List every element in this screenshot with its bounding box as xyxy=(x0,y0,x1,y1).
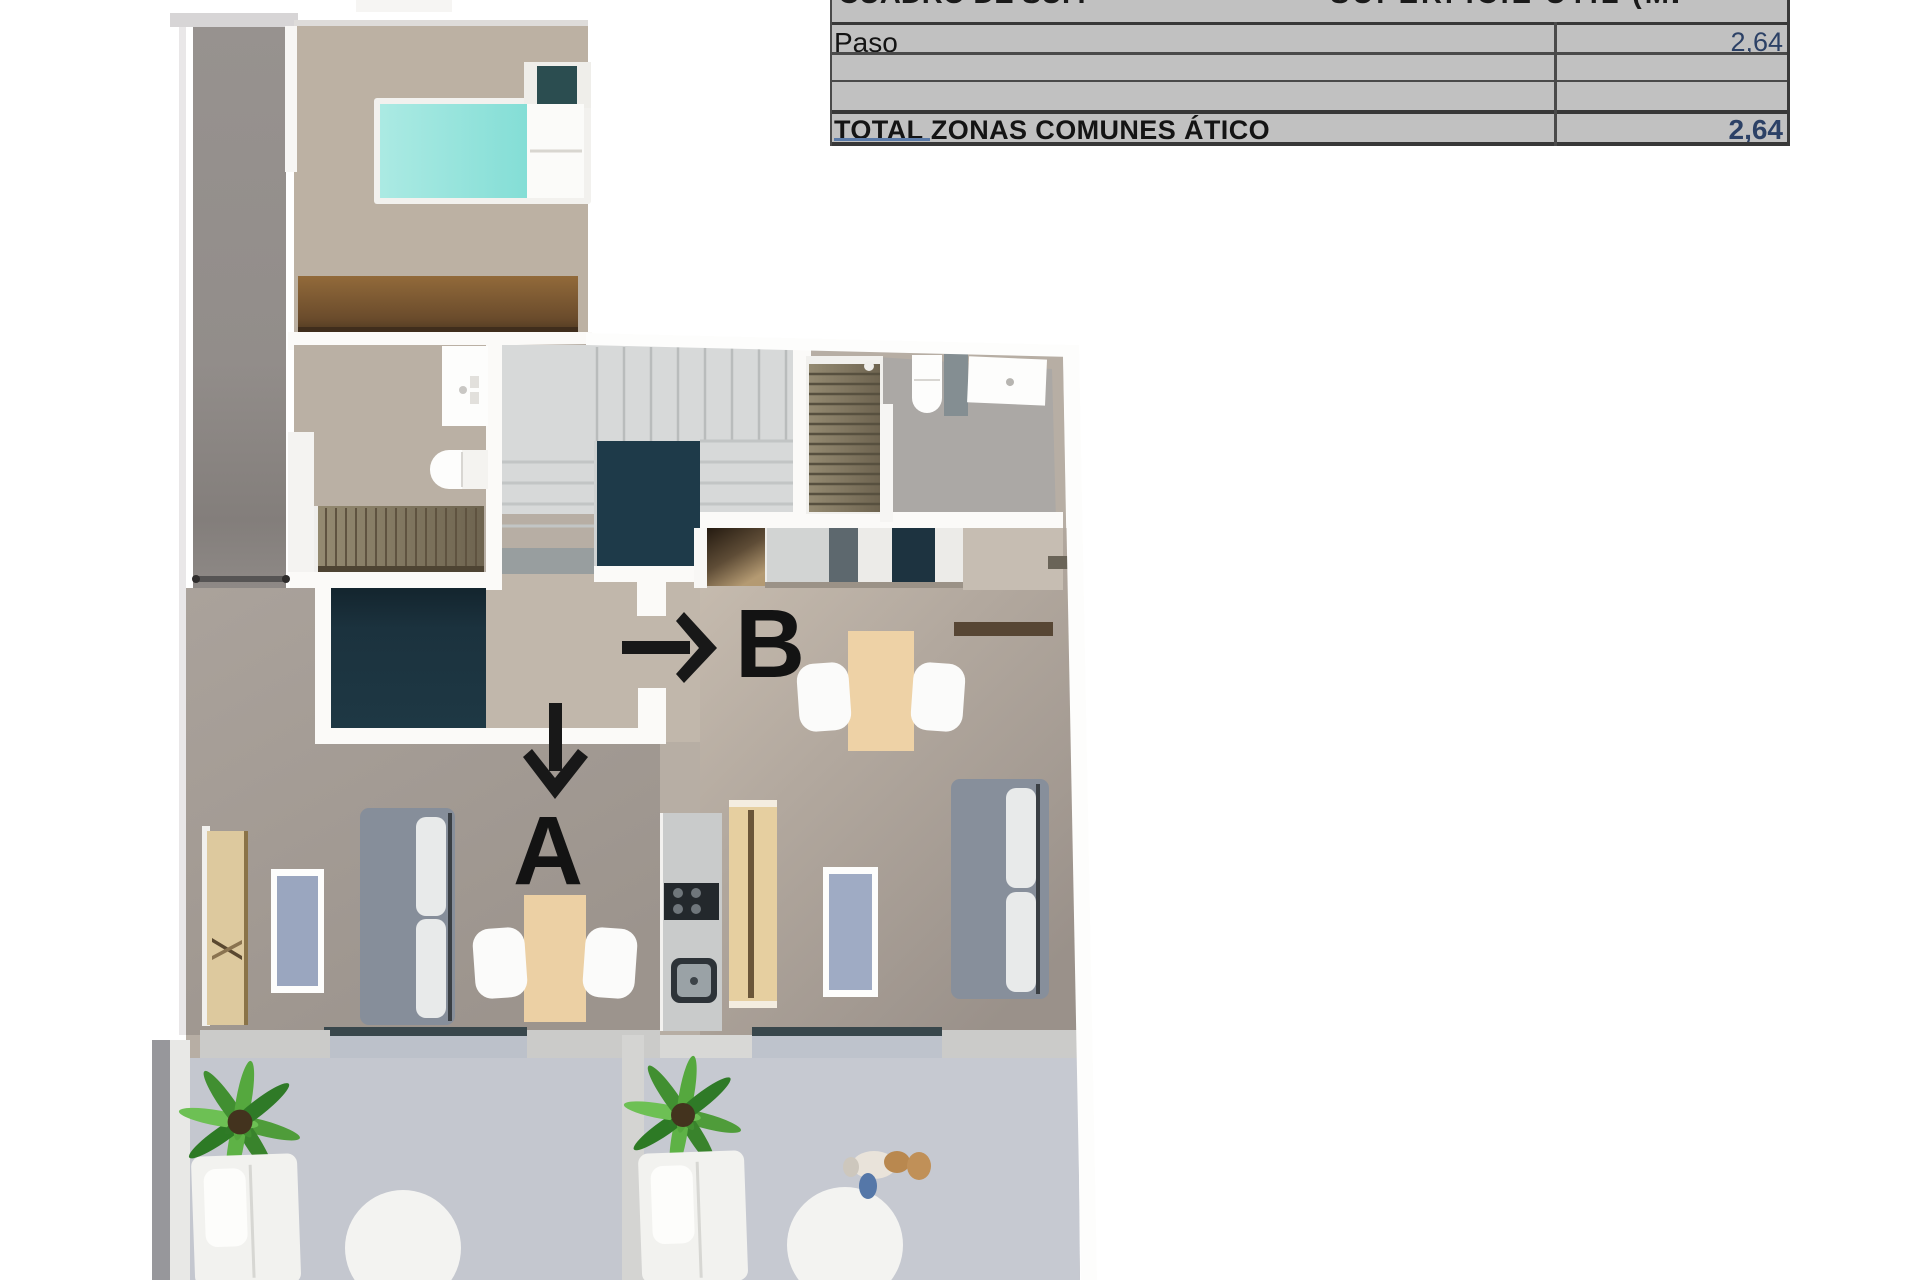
svg-text:A: A xyxy=(513,796,583,905)
svg-text:B: B xyxy=(735,589,805,698)
